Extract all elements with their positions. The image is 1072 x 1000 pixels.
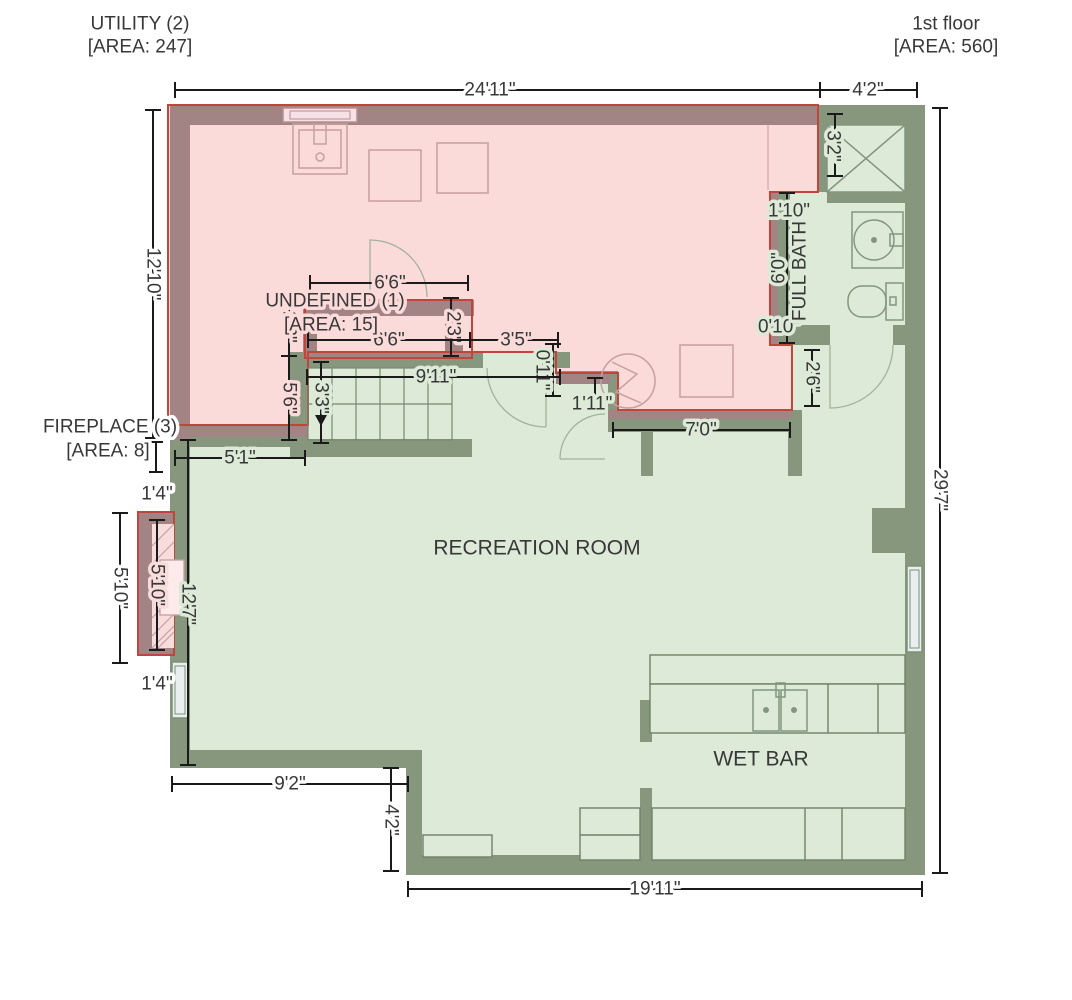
undefined-zone-name: UNDEFINED (1) <box>265 291 404 312</box>
dim-label-utility-left-height: 12'10" <box>143 248 164 301</box>
dim-label-stairs-run-height: 3'3" <box>311 382 332 414</box>
dim-label-stairs-width: 9'11" <box>416 367 457 388</box>
dim-label-rec-left-height: 12'7" <box>178 583 199 625</box>
wet-bar-counter <box>650 655 905 733</box>
dim-label-hall-stub-width: 0'11" <box>532 350 553 391</box>
dim-label-bath-wall-upper: 1'10" <box>768 201 810 222</box>
dim-label-bottom-width: 19'11" <box>629 879 680 900</box>
floor-plan-canvas: 24'11" 4'2" 12'10" 29'7" 3'2" 1'10" 6'0"… <box>0 0 1072 1000</box>
dim-label-bath-door-width: 2'6" <box>802 361 823 393</box>
dim-rec-bottom-left-width: 9'2" <box>172 774 408 795</box>
dim-label-undefined-right-height: 2'3" <box>443 311 464 343</box>
dim-label-top-width: 24'11" <box>464 80 515 101</box>
dim-label-bath-height: 6'0" <box>769 252 790 284</box>
dim-top-width: 24'11" <box>175 80 820 101</box>
dim-label-fireplace-offset-top: 1'4" <box>141 484 173 505</box>
undefined-zone-area: [AREA: 15] <box>284 315 378 336</box>
window-top <box>283 108 357 122</box>
dim-bottom-width: 19'11" <box>408 879 922 900</box>
dim-label-shower-height: 3'2" <box>823 130 844 162</box>
dim-label-closet-width: 3'5" <box>500 330 532 351</box>
window-right <box>907 566 922 652</box>
dim-label-right-height: 29'7" <box>930 469 951 511</box>
recreation-room-label: RECREATION ROOM <box>433 537 640 560</box>
window-left <box>172 662 188 718</box>
dim-label-bath-top-width: 4'2" <box>852 80 884 101</box>
dim-bath-top-width: 4'2" <box>820 80 917 101</box>
fireplace-zone-name: FIREPLACE (3) <box>43 417 177 438</box>
dim-fireplace-height-outer: 5'10" <box>110 513 131 663</box>
dim-label-rec-bottom-left-width: 9'2" <box>274 774 306 795</box>
fireplace-zone-area: [AREA: 8] <box>66 441 149 462</box>
dim-right-height: 29'7" <box>930 108 951 873</box>
full-bath-label: FULL BATH <box>790 221 811 321</box>
dim-label-fireplace-height-inner: 5'10" <box>147 564 168 606</box>
dim-fireplace-offset-bottom: 1'4" <box>141 674 173 695</box>
utility-zone-area: [AREA: 247] <box>88 37 193 58</box>
dim-label-step-height: 4'2" <box>381 804 402 836</box>
dim-label-mech-wall-width: 7'0" <box>685 420 717 441</box>
dim-label-stairs-left-height: 5'6" <box>279 382 300 414</box>
dim-utility-left-height: 12'10" <box>143 110 164 438</box>
wet-bar-label: WET BAR <box>713 748 808 771</box>
dim-label-fireplace-height-outer: 5'10" <box>110 567 131 609</box>
utility-zone-name: UTILITY (2) <box>91 14 190 35</box>
first-floor-area: [AREA: 560] <box>894 37 999 58</box>
floor-plan-page: 24'11" 4'2" 12'10" 29'7" 3'2" 1'10" 6'0"… <box>0 0 1072 1000</box>
dim-label-fireplace-offset-bottom: 1'4" <box>141 674 173 695</box>
dim-label-rec-upper-left-width: 5'1" <box>224 448 256 469</box>
dim-label-alcove-width: 1'11" <box>572 394 613 415</box>
first-floor-name: 1st floor <box>912 14 980 35</box>
